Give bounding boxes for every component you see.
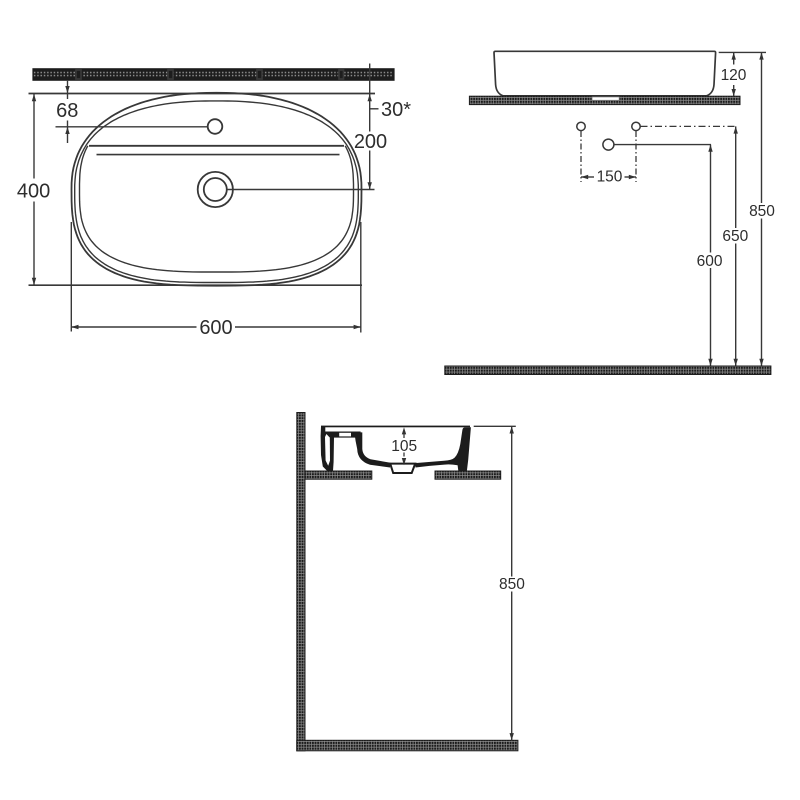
svg-text:850: 850 bbox=[499, 576, 525, 593]
svg-text:850: 850 bbox=[749, 203, 775, 220]
svg-text:105: 105 bbox=[391, 438, 417, 455]
svg-text:600: 600 bbox=[697, 253, 723, 270]
svg-text:200: 200 bbox=[354, 131, 387, 153]
svg-text:150: 150 bbox=[597, 169, 623, 186]
svg-text:68: 68 bbox=[56, 100, 78, 122]
svg-text:600: 600 bbox=[199, 317, 232, 339]
svg-text:650: 650 bbox=[722, 228, 748, 245]
svg-text:30*: 30* bbox=[381, 99, 411, 121]
svg-text:400: 400 bbox=[17, 180, 50, 202]
svg-text:120: 120 bbox=[721, 67, 747, 84]
